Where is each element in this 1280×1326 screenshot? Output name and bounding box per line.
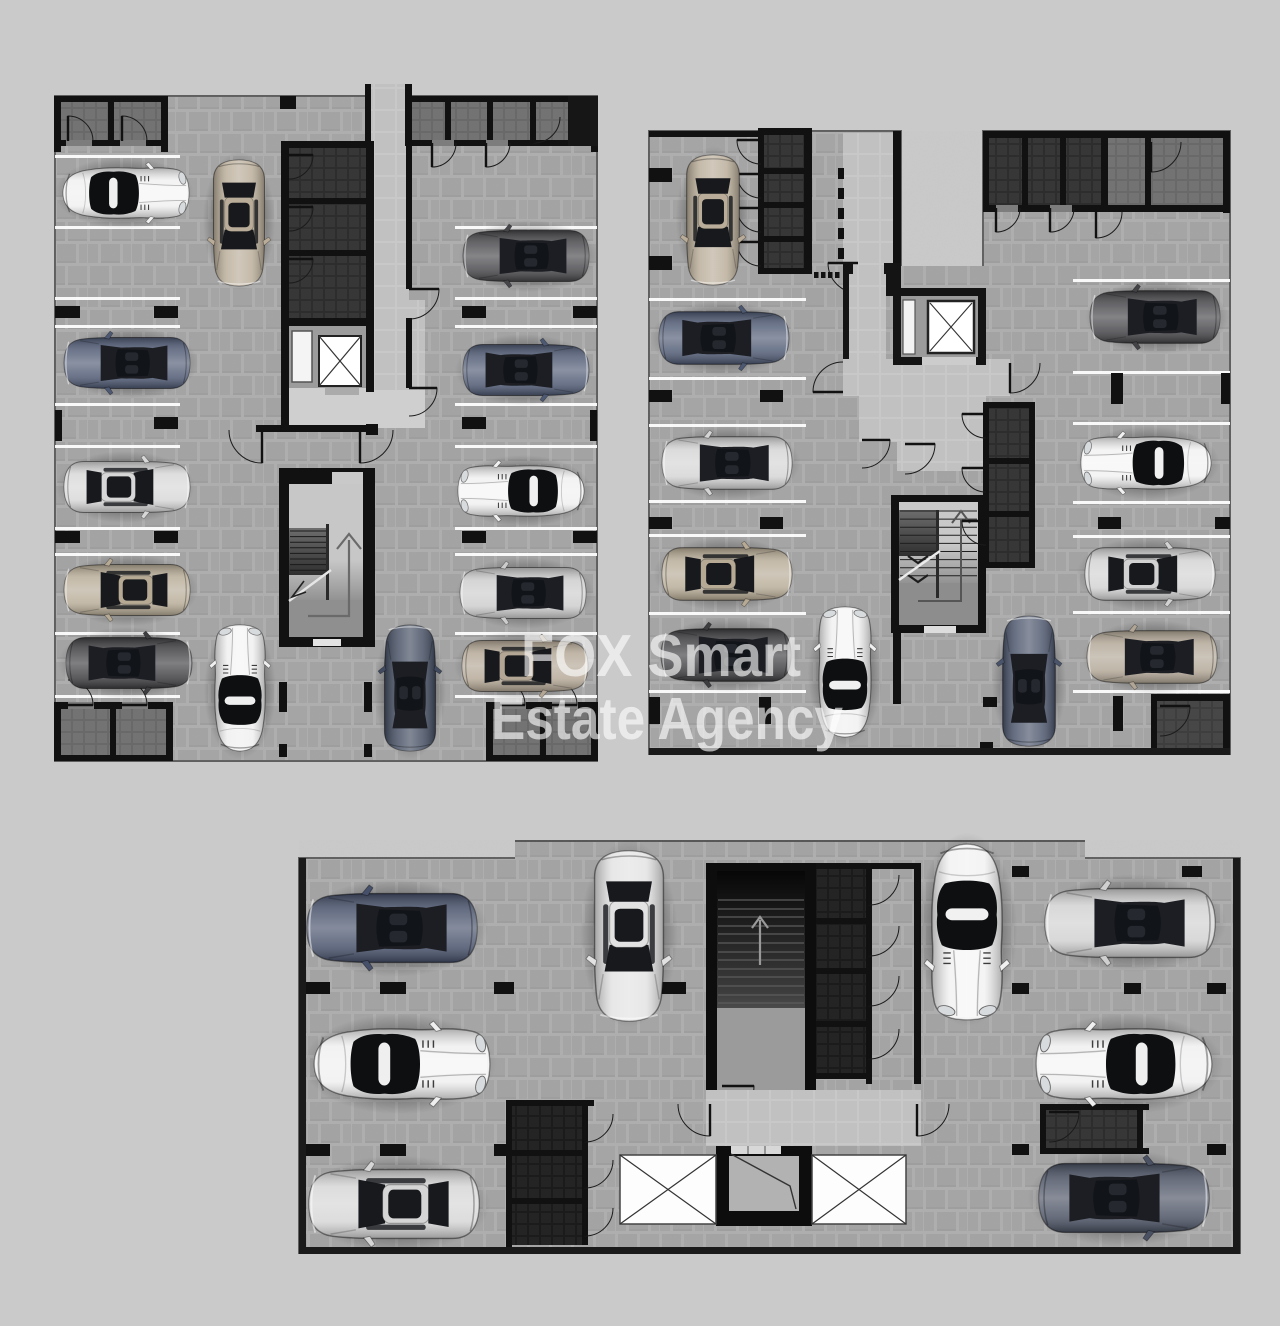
svg-text:Estate Agency: Estate Agency	[491, 686, 843, 752]
svg-text:FOX Smart: FOX Smart	[521, 623, 801, 689]
